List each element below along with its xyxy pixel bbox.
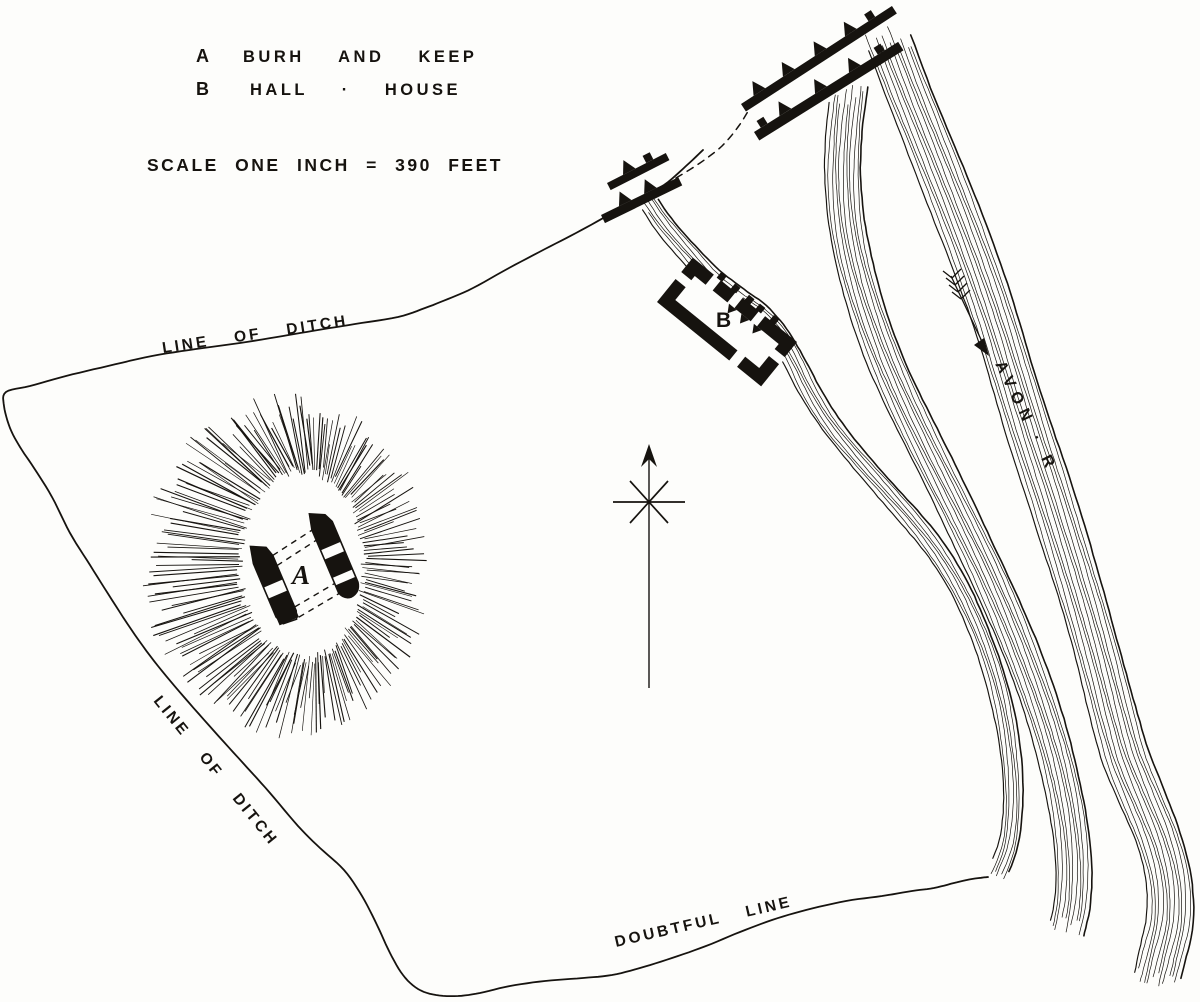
ditch-line-top-label: LINE OF DITCH [161,312,349,357]
hall-marker-label: B [716,309,731,332]
keep-right-wall-black-2 [324,551,352,578]
enclosure-boundary-line [3,150,988,996]
ditch-line-left-label: LINE OF DITCH [150,693,281,850]
scale-note: SCALE ONE INCH = 390 FEET [147,155,503,175]
legend-key-a: A [196,46,210,66]
flow-arrow-feathers [943,269,970,299]
river-bank-hatching [643,27,1194,986]
north-arrow [613,444,685,688]
legend-label-burh-keep: BURH AND KEEP [243,48,477,66]
site-plan-figure: A BURH AND KEEP B HALL · HOUSE SCALE ONE… [0,0,1200,1002]
river-avon-label: AVON · R [991,358,1060,476]
legend-key-b: B [196,79,210,99]
site-plan-svg: A BURH AND KEEP B HALL · HOUSE SCALE ONE… [0,0,1200,1002]
bridge-wall-bars [595,0,903,223]
legend: A BURH AND KEEP B HALL · HOUSE SCALE ONE… [147,46,503,175]
doubtful-road-dashes [676,97,756,178]
legend-label-hall-house: HALL · HOUSE [250,81,461,99]
flow-arrow [943,269,989,356]
keep-marker-label: A [290,560,310,590]
motte-mound-hachures [143,394,427,738]
